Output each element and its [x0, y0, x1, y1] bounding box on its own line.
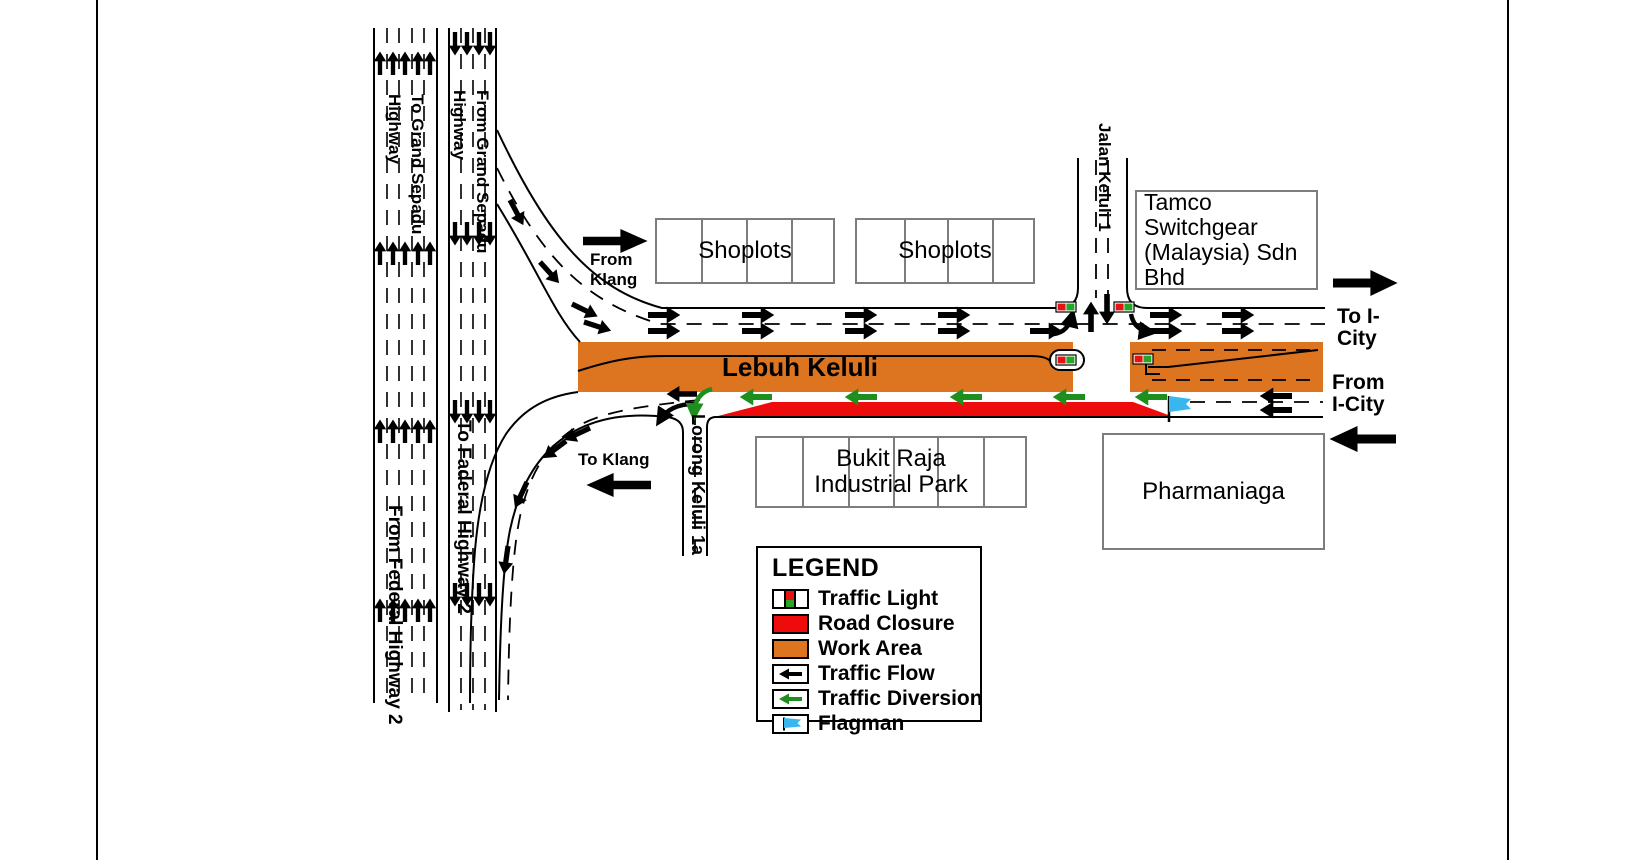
building-pharmaniaga: Pharmaniaga: [1102, 433, 1325, 550]
building-tamco: Tamco Switchgear (Malaysia) Sdn Bhd: [1135, 190, 1318, 290]
legend-item-traffic-light: Traffic Light: [772, 586, 980, 611]
building-label: Shoplots: [698, 238, 791, 264]
road-closure-swatch: [772, 614, 809, 634]
traffic-light-icon: [1114, 302, 1134, 312]
traffic-light-icon: [1133, 354, 1153, 364]
eastbound-flow-arrows: [648, 307, 1254, 340]
building-shoplots-1: Shoplots: [655, 218, 835, 284]
building-label: Bukit Raja Industrial Park: [791, 446, 991, 498]
traffic-light-icon: [772, 589, 809, 609]
label-to-icity: To I-City: [1337, 306, 1399, 350]
highway-label-to-grand-sepadu: To Grand Sepadu Highway: [382, 94, 428, 254]
street-label-jalan-keluli: Jalan Keluli 1: [1089, 123, 1115, 283]
label-to-klang: To Klang: [578, 450, 688, 470]
legend-title: LEGEND: [772, 554, 980, 583]
legend-item-road-closure: Road Closure: [772, 611, 980, 636]
divider: [992, 220, 994, 282]
building-label: Pharmaniaga: [1142, 479, 1285, 505]
jalan-keluli-arrows: [1054, 294, 1150, 334]
flagman-icon: [772, 714, 809, 734]
building-label: Tamco Switchgear (Malaysia) Sdn Bhd: [1144, 190, 1316, 289]
street-label-lebuh-keluli: Lebuh Keluli: [700, 352, 900, 383]
traffic-light-icon: [1056, 302, 1076, 312]
to-icity-arrow: [1333, 270, 1398, 296]
building-label: Shoplots: [898, 238, 991, 264]
highway-label-from-grand-sepadu: From Grand Sepadu Highway: [447, 90, 493, 260]
traffic-light-icon: [1056, 355, 1076, 365]
legend: LEGEND Traffic Light Road Closure Work A…: [756, 546, 982, 722]
highway-label-from-federal: From Federal Highway 2: [381, 505, 407, 775]
road-closure-strip: [718, 402, 1171, 416]
from-icity-arrow: [1330, 426, 1397, 452]
flagman-icon: [1169, 396, 1191, 422]
building-shoplots-2: Shoplots: [855, 218, 1035, 284]
highway-label-to-federal: To Faderal Highway 2: [450, 420, 476, 730]
work-area-swatch: [772, 639, 809, 659]
traffic-diversion-arrow-icon: [772, 689, 809, 709]
to-klang-arrow: [586, 473, 651, 497]
building-bukit-raja: Bukit Raja Industrial Park: [755, 436, 1027, 508]
label-from-icity: From I-City: [1332, 372, 1402, 416]
traffic-flow-arrow-icon: [772, 664, 809, 684]
traffic-management-plan: Shoplots Shoplots Tamco Switchgear (Mala…: [0, 0, 1630, 860]
legend-item-traffic-diversion: Traffic Diversion: [772, 686, 980, 711]
label-from-klang: From Klang: [590, 250, 654, 291]
legend-item-flagman: Flagman: [772, 711, 980, 736]
legend-item-work-area: Work Area: [772, 636, 980, 661]
street-label-lorong-keluli: Lorong Keluli 1a: [684, 414, 710, 624]
legend-item-traffic-flow: Traffic Flow: [772, 661, 980, 686]
